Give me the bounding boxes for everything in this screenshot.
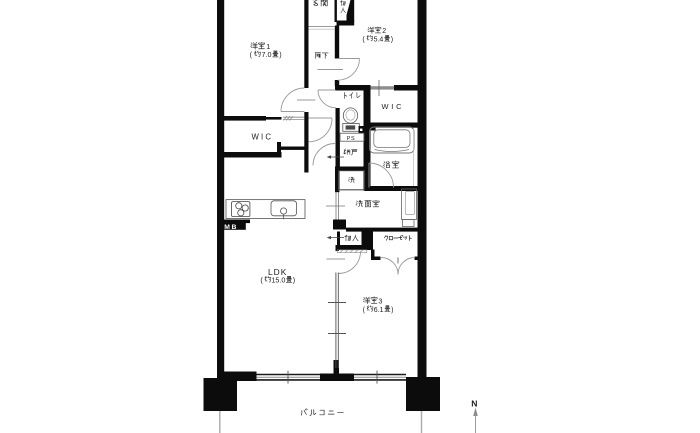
svg-text:3: 3	[378, 297, 382, 306]
svg-text:): )	[391, 36, 393, 43]
svg-text:(: (	[260, 276, 263, 285]
svg-text:(: (	[362, 36, 365, 43]
svg-text:PS: PS	[347, 136, 355, 142]
svg-text:6.1: 6.1	[374, 307, 384, 314]
svg-text:(: (	[250, 50, 253, 59]
svg-text:): )	[293, 276, 295, 285]
svg-text:(: (	[363, 307, 366, 314]
svg-text:WIC: WIC	[252, 132, 274, 141]
svg-text:): )	[391, 307, 393, 314]
svg-text:MB: MB	[224, 224, 238, 231]
svg-text:15.0: 15.0	[271, 276, 285, 285]
svg-text:WIC: WIC	[382, 102, 405, 111]
svg-text:5.4: 5.4	[374, 36, 384, 43]
svg-text:7.0: 7.0	[262, 50, 272, 59]
svg-text:N: N	[471, 398, 477, 408]
svg-text:2: 2	[382, 28, 386, 35]
svg-text:): )	[279, 50, 281, 59]
